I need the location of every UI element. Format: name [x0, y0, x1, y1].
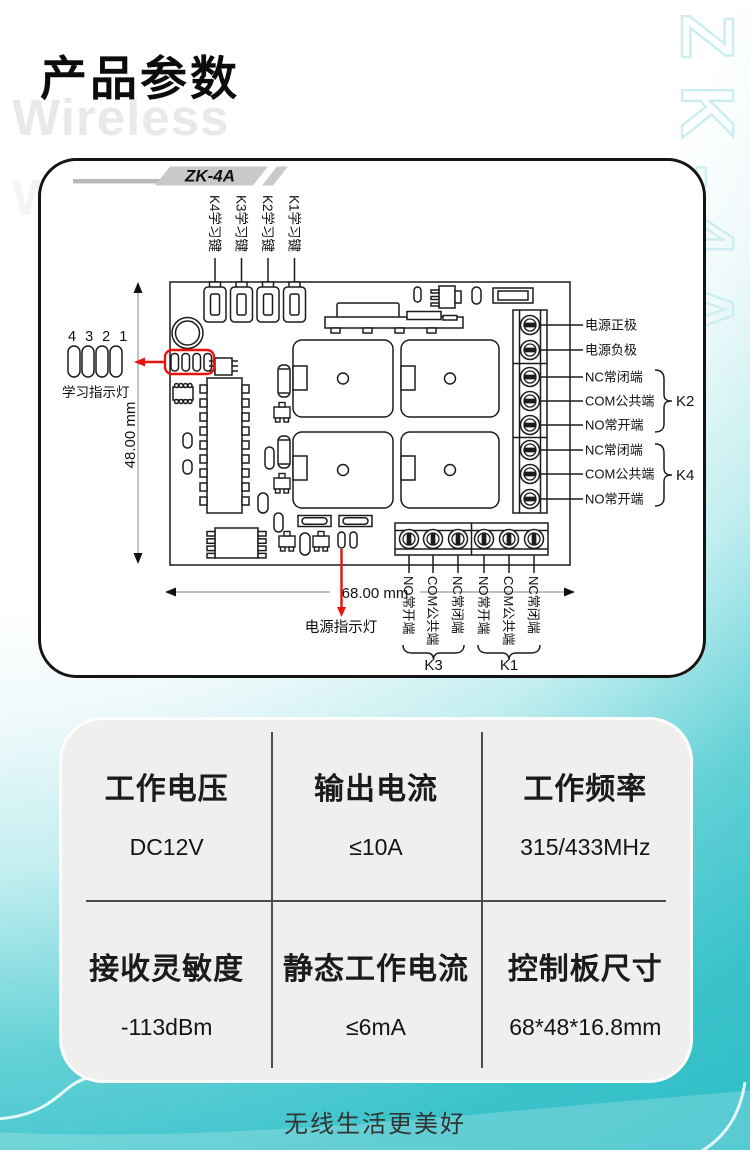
oscillator — [173, 384, 193, 404]
learn-key-label: K2学习键 — [260, 195, 275, 253]
learn-button-k2 — [257, 282, 279, 322]
relay-4 — [401, 432, 499, 508]
diode — [183, 460, 192, 474]
learn-button-k3 — [231, 282, 253, 322]
resistor-top — [493, 288, 533, 303]
brace-k4 — [655, 444, 672, 506]
spec-label: 工作电压 — [105, 764, 229, 808]
spec-value: 68*48*16.8mm — [509, 1014, 661, 1041]
page-title: 产品参数 — [40, 40, 240, 109]
legend-led — [68, 346, 80, 377]
terminal-label: COM公共端 — [501, 576, 516, 645]
terminal-screw — [400, 530, 419, 549]
learn-button-k4 — [204, 282, 226, 322]
terminal-screw — [521, 392, 540, 411]
terminal-label: NO常开端 — [401, 576, 416, 635]
terminal-screw — [521, 341, 540, 360]
terminal-screw — [500, 530, 519, 549]
spec-value: -113dBm — [121, 1014, 213, 1041]
terminal-screw — [521, 441, 540, 460]
spec-label: 静态工作电流 — [283, 944, 469, 988]
page: ZK-4A Wireless Wireless 产品参数 ZK-4A — [0, 0, 750, 1150]
terminal-label: COM公共端 — [585, 467, 654, 482]
power-led — [338, 532, 345, 548]
table-divider — [86, 900, 666, 902]
terminal-screw — [521, 465, 540, 484]
terminal-screw — [521, 490, 540, 509]
relay-group-label: K1 — [500, 657, 518, 674]
terminal-screw — [521, 416, 540, 435]
indicator-numbers: 4 3 2 1 — [68, 329, 130, 345]
legend-led — [96, 346, 108, 377]
spec-value: DC12V — [130, 834, 204, 861]
soic-ic — [207, 528, 266, 558]
terminal-label: NC常闭端 — [450, 576, 465, 634]
terminal-label: 电源负极 — [585, 343, 637, 358]
indicator-label: 学习指示灯 — [62, 385, 130, 400]
spec-cell: 输出电流 ≤10A — [271, 720, 480, 900]
terminal-screw — [521, 316, 540, 335]
relay-group-label: K3 — [424, 657, 442, 674]
diode — [300, 533, 310, 555]
relay-group-label: K4 — [676, 467, 694, 484]
legend-led — [82, 346, 94, 377]
relay-3 — [293, 432, 393, 508]
legend-led — [110, 346, 122, 377]
learn-key-label: K1学习键 — [287, 195, 302, 253]
electrolytic-capacitor — [172, 318, 203, 349]
diode — [258, 493, 268, 513]
terminal-screw — [475, 530, 494, 549]
relay-group-label: K2 — [676, 393, 694, 410]
capacitor — [414, 287, 421, 302]
tagline: 无线生活更美好 — [0, 1104, 750, 1139]
pcb-diagram: ZK-4A — [38, 158, 706, 678]
learn-key-label: K3学习键 — [234, 195, 249, 253]
relay-2 — [401, 340, 499, 417]
power-led-arrow — [337, 607, 346, 617]
diode — [183, 433, 192, 448]
power-led-label: 电源指示灯 — [305, 619, 378, 636]
terminal-label: NC常闭端 — [585, 370, 643, 385]
terminal-label: NO常开端 — [585, 492, 644, 507]
terminal-label: COM公共端 — [425, 576, 440, 645]
spec-cell: 静态工作电流 ≤6mA — [271, 900, 480, 1080]
spec-table: 工作电压 DC12V 输出电流 ≤10A 工作频率 315/433MHz 接收灵… — [59, 717, 693, 1083]
spec-cell: 控制板尺寸 68*48*16.8mm — [481, 900, 690, 1080]
spec-cell: 工作电压 DC12V — [62, 720, 271, 900]
diode — [265, 447, 274, 469]
brace-k2 — [655, 370, 672, 432]
height-dimension: 48.00 mm — [122, 402, 139, 469]
terminal-label: 电源正极 — [585, 318, 637, 333]
spec-value: 315/433MHz — [520, 834, 650, 861]
terminal-label: NC常闭端 — [585, 443, 643, 458]
capacitor — [472, 287, 481, 304]
led-arrow — [134, 358, 145, 367]
terminal-label: NO常开端 — [476, 576, 491, 635]
relay-1 — [293, 340, 393, 417]
terminal-screw — [449, 530, 468, 549]
spec-label: 接收灵敏度 — [89, 944, 244, 988]
spec-cell: 工作频率 315/433MHz — [481, 720, 690, 900]
spec-label: 控制板尺寸 — [508, 944, 663, 988]
diagram-panel: ZK-4A — [38, 158, 706, 678]
spec-value: ≤6mA — [346, 1014, 406, 1041]
terminal-screw — [525, 530, 544, 549]
main-ic — [200, 378, 249, 513]
terminal-screw — [424, 530, 443, 549]
terminal-label: NC常闭端 — [526, 576, 541, 634]
learn-button-k1 — [284, 282, 306, 322]
diode — [274, 513, 283, 532]
model-badge: ZK-4A — [73, 167, 288, 186]
capacitor — [278, 436, 290, 468]
learn-key-label: K4学习键 — [207, 195, 222, 253]
spec-value: ≤10A — [349, 834, 403, 861]
model-badge-label: ZK-4A — [184, 167, 235, 186]
terminal-label: COM公共端 — [585, 394, 654, 409]
width-dimension: 68.00 mm — [342, 585, 409, 602]
spec-cell: 接收灵敏度 -113dBm — [62, 900, 271, 1080]
capacitor — [278, 365, 290, 397]
spec-label: 输出电流 — [314, 764, 438, 808]
led — [350, 532, 357, 548]
terminal-screw — [521, 368, 540, 387]
terminal-label: NO常开端 — [585, 418, 644, 433]
spec-label: 工作频率 — [523, 764, 647, 808]
